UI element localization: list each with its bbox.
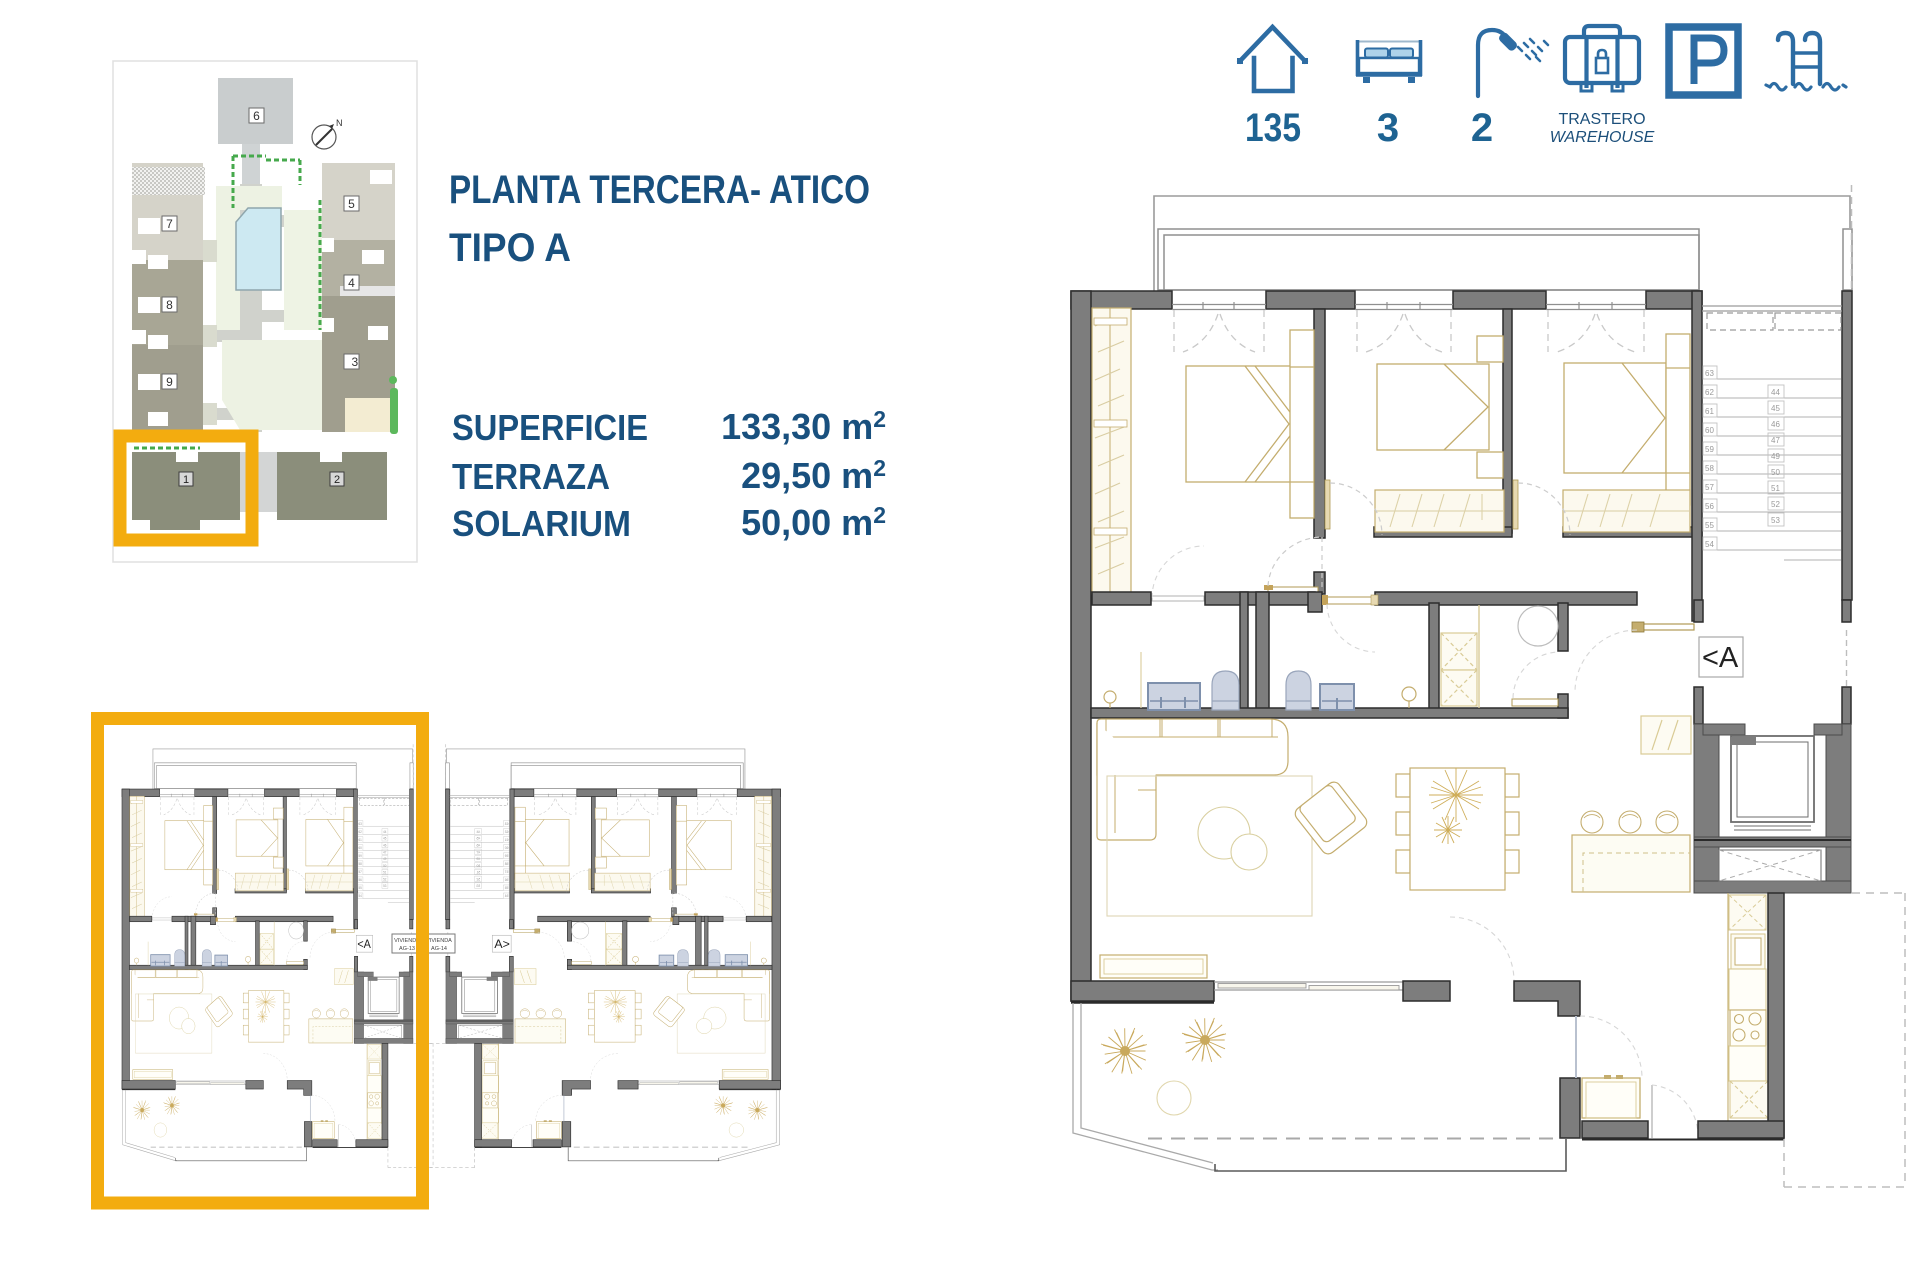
svg-text:TRASTERO: TRASTERO	[1558, 111, 1645, 128]
svg-text:3: 3	[352, 355, 359, 369]
svg-text:WAREHOUSE: WAREHOUSE	[1550, 129, 1655, 146]
svg-text:4: 4	[348, 276, 355, 290]
svg-text:9: 9	[166, 375, 173, 389]
svg-text:8: 8	[166, 298, 173, 312]
svg-text:SUPERFICIE: SUPERFICIE	[452, 407, 648, 448]
svg-text:1: 1	[183, 474, 189, 486]
svg-text:AG-13: AG-13	[399, 946, 415, 952]
svg-text:5: 5	[348, 197, 355, 211]
svg-text:PLANTA TERCERA- ATICO: PLANTA TERCERA- ATICO	[449, 168, 870, 212]
svg-text:VIVIENDA: VIVIENDA	[426, 938, 452, 944]
svg-text:3: 3	[1377, 106, 1399, 150]
svg-text:TIPO A: TIPO A	[449, 226, 571, 270]
svg-text:2: 2	[1471, 106, 1493, 150]
svg-text:SOLARIUM: SOLARIUM	[452, 503, 631, 544]
svg-text:2: 2	[334, 474, 340, 486]
svg-text:133,30 m2: 133,30 m2	[721, 406, 886, 447]
svg-text:50,00 m2: 50,00 m2	[741, 502, 886, 543]
svg-text:7: 7	[166, 217, 173, 231]
svg-text:AG-14: AG-14	[431, 946, 447, 952]
svg-text:135: 135	[1245, 106, 1301, 150]
svg-text:29,50 m2: 29,50 m2	[741, 455, 886, 496]
svg-text:6: 6	[253, 109, 260, 123]
svg-text:N: N	[336, 118, 343, 128]
svg-text:TERRAZA: TERRAZA	[452, 456, 610, 497]
